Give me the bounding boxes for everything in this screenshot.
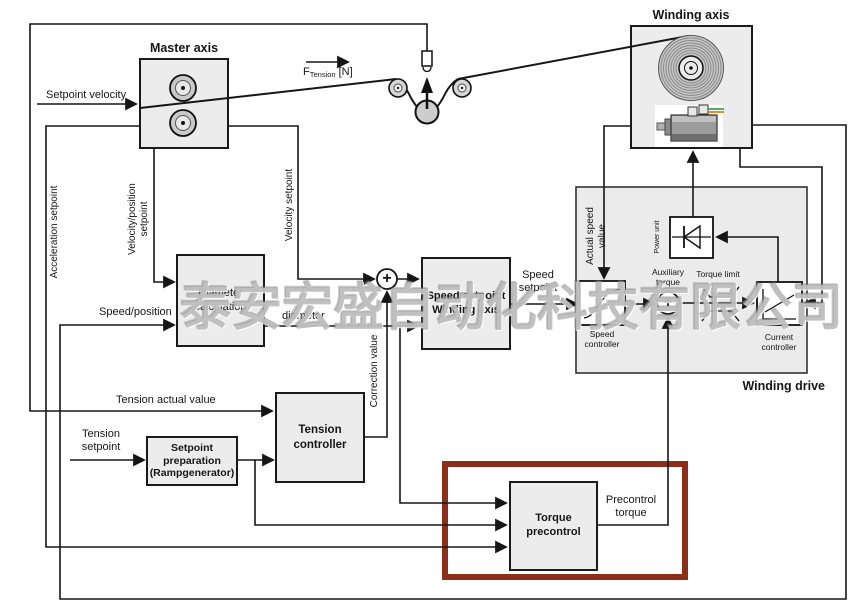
velocity-position-setpoint-label: Velocity/position setpoint (127, 164, 153, 274)
winding-axis-title: Winding axis (628, 8, 754, 23)
winding-roll-icon (659, 36, 724, 101)
f-tension-base: F (303, 66, 310, 78)
tension-setpoint-label: Tension setpoint (70, 428, 132, 454)
diameter-label: diameter (282, 310, 325, 323)
setpoint-velocity-label: Setpoint velocity (46, 89, 126, 102)
tension-sensor-icon (389, 51, 471, 124)
motor-image (655, 105, 724, 147)
speed-setpoint-winding-axis-text: Speed setpoint Winding axis (422, 258, 510, 349)
line-velocity-position-setpoint (154, 148, 174, 282)
master-axis-title: Master axis (138, 41, 230, 56)
sum1-plus-sign: + (379, 271, 395, 287)
torque-limit-label: Torque limit (690, 270, 746, 280)
torque-precontrol-text: Torque precontrol (510, 482, 597, 570)
tension-controller-text: Tension controller (276, 393, 364, 482)
power-unit-label: Power unit (654, 214, 664, 260)
diameter-calculation-text: Diameter calculation (177, 255, 264, 346)
velocity-setpoint-label: Velocity setpoint (284, 155, 298, 255)
f-tension-label: FTension[N] (303, 66, 353, 79)
winder-control-diagram: Master axis Winding axis Winding drive S… (0, 0, 851, 607)
current-controller-label: Current controller (751, 333, 807, 353)
speed-controller-box (580, 281, 625, 325)
actual-speed-value-label: Actual speed value (585, 191, 611, 281)
f-tension-sub: Tension (310, 70, 336, 79)
sum2-plus-sign: + (660, 295, 676, 311)
speed-position-label: Speed/position (99, 306, 172, 319)
guide-pulley-right-icon (453, 79, 471, 97)
auxiliary-torque-label: Auxiliary torque (643, 268, 693, 288)
guide-pulley-left-icon (389, 79, 407, 97)
acceleration-setpoint-label: Acceleration setpoint (49, 167, 63, 297)
speed-setpoint-label: Speed setpoint (511, 269, 565, 295)
correction-value-label: Correction value (369, 321, 383, 421)
f-tension-unit: [N] (339, 66, 353, 78)
line-diameter-to-precontrol (400, 326, 506, 503)
precontrol-torque-label: Precontrol torque (599, 494, 663, 520)
tension-actual-value-label: Tension actual value (116, 394, 216, 407)
setpoint-preparation-text: Setpoint preparation (Rampgenerator) (146, 437, 238, 485)
load-cell-icon (422, 51, 432, 66)
speed-controller-label: Speed controller (574, 330, 630, 350)
winding-drive-title: Winding drive (697, 379, 825, 394)
